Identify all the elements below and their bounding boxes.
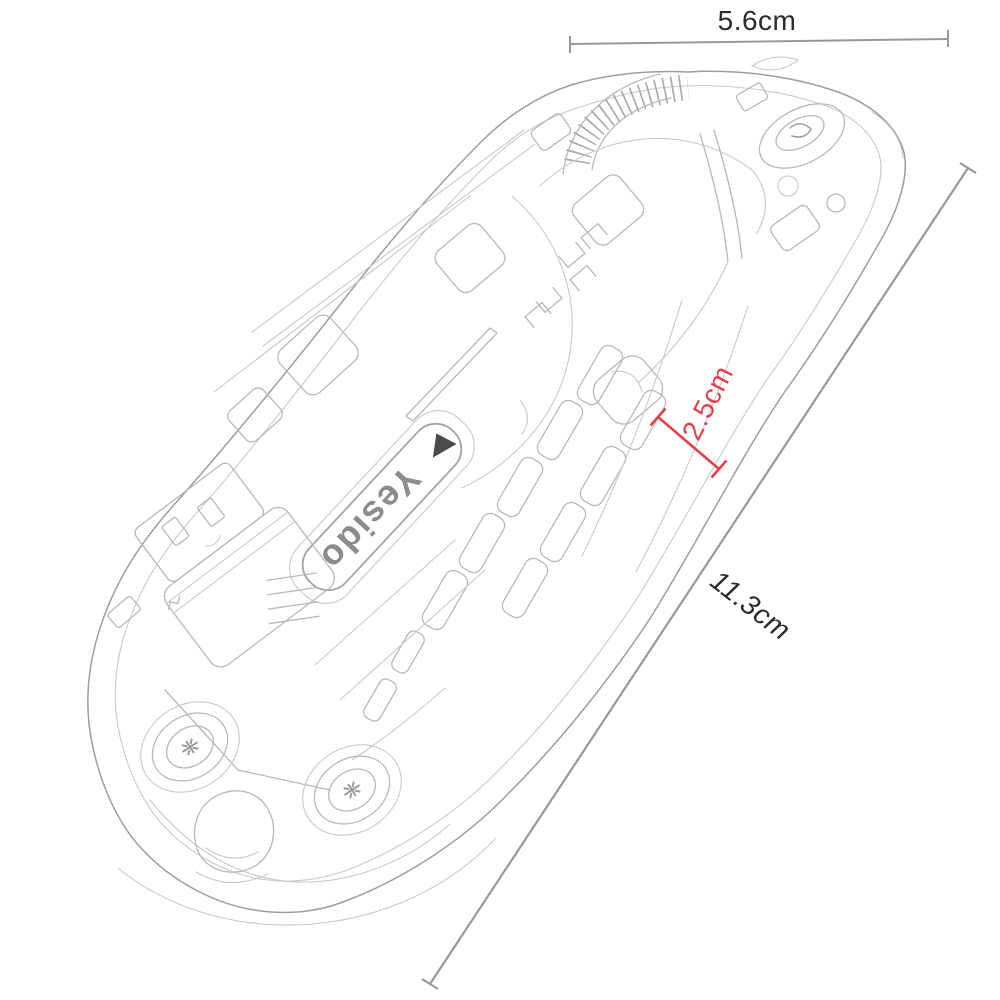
side-slot (107, 595, 142, 628)
dimension-inner-label: 2.5cm (676, 361, 739, 445)
screw-link (352, 688, 445, 760)
shell-band-left (582, 300, 682, 556)
curl-mark (520, 400, 528, 434)
bracket-3 (570, 266, 596, 291)
pivot-circle (827, 194, 845, 212)
bracket-2 (559, 243, 585, 268)
dimension-length-label: 11.3cm (703, 566, 798, 645)
wheel-housing-curve (540, 138, 752, 186)
roller-housing-arc (612, 371, 642, 392)
sensor-block (735, 82, 768, 112)
bracket-chain (525, 224, 607, 328)
dimension-length (422, 163, 976, 989)
button-block-1 (568, 171, 647, 249)
diagram-canvas: Yesido (0, 0, 1000, 1000)
slot (499, 555, 551, 621)
mouse-wireframe: Yesido (88, 57, 905, 925)
mouse-outline-outer (88, 71, 905, 912)
battery-foot (194, 791, 273, 883)
slot (419, 567, 471, 633)
brand-logo-mark-icon (423, 429, 457, 463)
slot (574, 342, 626, 408)
phillips-cross-icon (179, 736, 202, 758)
switch-block (768, 203, 821, 253)
usb-contact-slot (197, 497, 225, 526)
dimension-width-line (570, 39, 948, 44)
usb-plug (132, 460, 266, 584)
dome-curve (512, 196, 572, 362)
screw-mount-1 (124, 683, 257, 810)
vent-slot-grid (361, 342, 669, 723)
phillips-cross-icon (341, 779, 364, 801)
mouse-dimension-diagram: Yesido (0, 0, 1000, 1000)
shell-corner-arc (872, 112, 903, 158)
frame-line (214, 196, 470, 392)
wheel-clip (529, 112, 572, 152)
lower-frame-2 (340, 570, 485, 700)
frame-line (252, 130, 524, 332)
brand-badge: Yesido (277, 398, 486, 616)
slot (494, 454, 546, 520)
usb-body (159, 502, 339, 672)
slot (456, 510, 508, 576)
shell-highlight-leaf (752, 57, 798, 70)
battery-foot-shadow-arc (196, 872, 268, 883)
usb-contact-slot (161, 517, 189, 546)
dimension-length-tick-top (960, 163, 976, 173)
frame-lines (165, 130, 748, 790)
dimension-width-label: 5.6cm (718, 5, 797, 36)
brand-logo-text: Yesido (312, 458, 429, 580)
usb-plug-mark (206, 535, 222, 549)
frame-line (263, 144, 535, 346)
bracket-5 (525, 303, 551, 328)
dimension-length-tick-bottom (422, 979, 438, 989)
sensor-mechanism (638, 57, 903, 383)
wheel-housing-curve-2 (752, 170, 765, 234)
bracket-4 (536, 288, 562, 313)
slot (577, 443, 629, 509)
screw-mount-2 (286, 726, 419, 853)
screw-bridge (165, 690, 330, 790)
spring-bar (406, 328, 497, 421)
usb-grip-ridges (248, 554, 338, 643)
slot-small (361, 676, 399, 723)
dome-curve-2 (462, 362, 568, 488)
button-block-2 (431, 219, 509, 296)
slot (534, 397, 586, 463)
hinge-arm-b (714, 130, 742, 258)
scroll-wheel (529, 74, 765, 234)
dimension-length-line (430, 168, 968, 984)
slot (537, 499, 589, 565)
usb-dongle (118, 450, 349, 686)
slot-small (389, 628, 427, 675)
sensor-ring-inner (770, 108, 829, 157)
pivot-circle-2 (778, 176, 798, 196)
sensor-spiral (790, 124, 811, 137)
